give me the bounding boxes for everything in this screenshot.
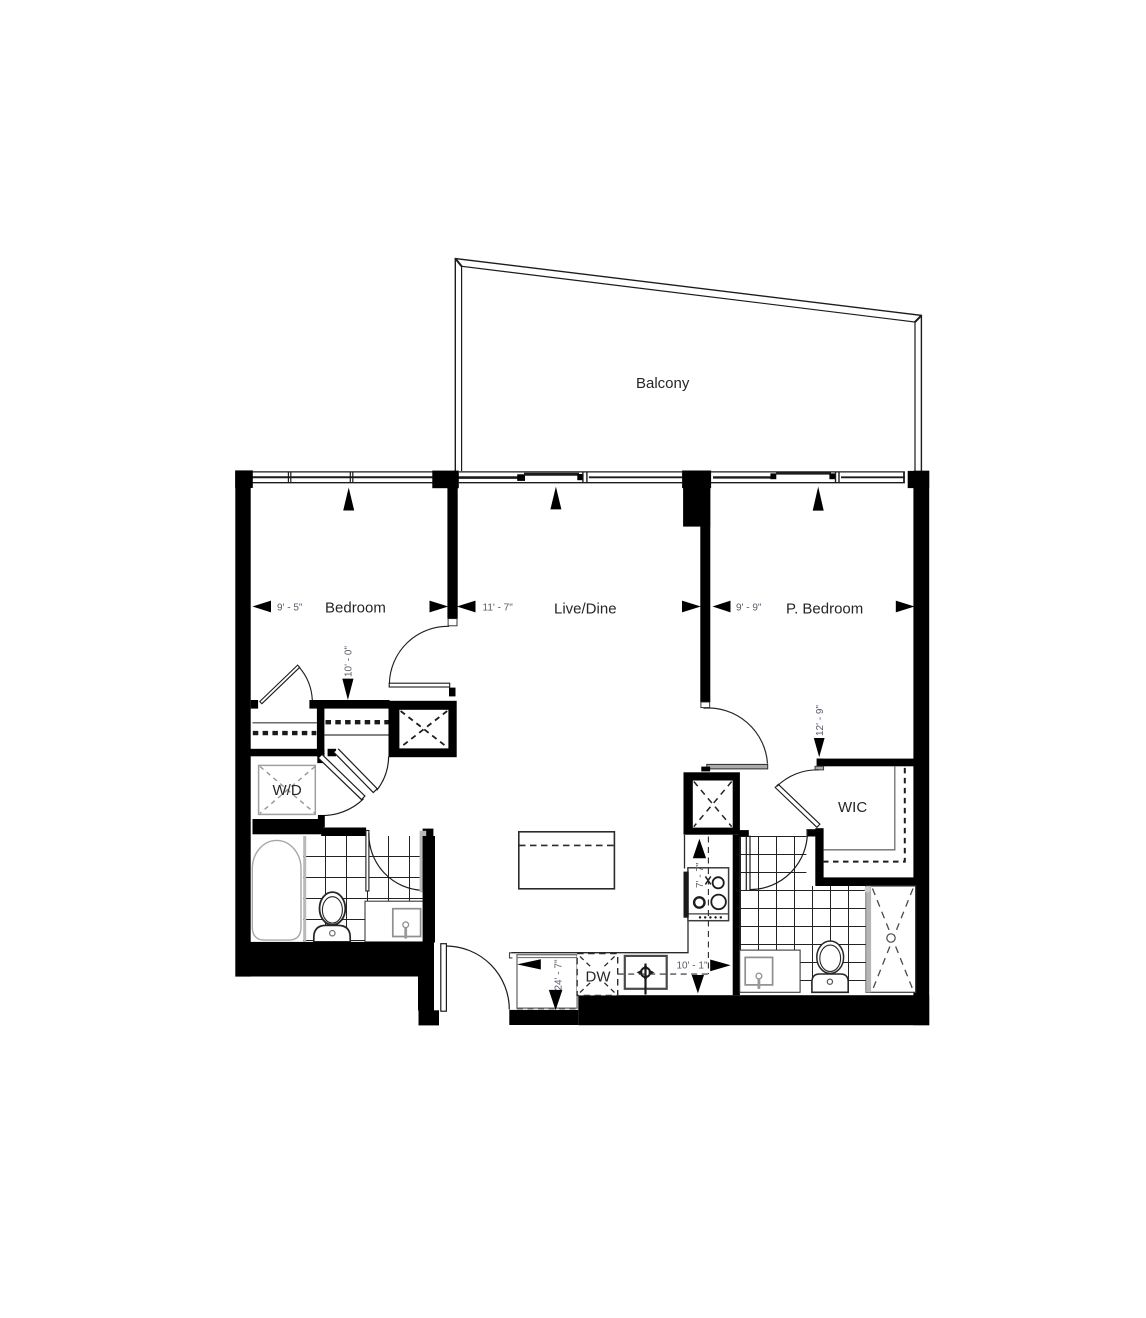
svg-text:Live/Dine: Live/Dine <box>554 601 617 618</box>
svg-text:11' - 7": 11' - 7" <box>483 603 514 614</box>
svg-text:12' - 9": 12' - 9" <box>815 705 826 736</box>
svg-text:10' - 1": 10' - 1" <box>677 961 708 972</box>
svg-text:9' - 5": 9' - 5" <box>277 603 303 614</box>
svg-text:7' - 7": 7' - 7" <box>695 862 706 888</box>
svg-text:10' - 0": 10' - 0" <box>344 646 355 677</box>
svg-text:WIC: WIC <box>838 799 867 816</box>
svg-text:9' - 9": 9' - 9" <box>736 603 762 614</box>
svg-text:DW: DW <box>586 969 612 986</box>
svg-text:Bedroom: Bedroom <box>325 600 386 617</box>
svg-text:24' - 7": 24' - 7" <box>554 959 565 990</box>
svg-text:Balcony: Balcony <box>636 375 690 392</box>
svg-text:P. Bedroom: P. Bedroom <box>786 601 863 618</box>
svg-text:W/D: W/D <box>273 782 302 799</box>
